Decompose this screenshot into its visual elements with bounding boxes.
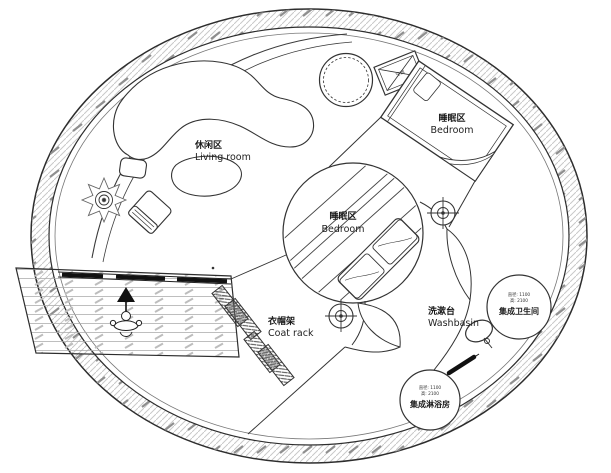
toilet-pod: 直径: 1100 高: 2100 集成卫生间: [487, 275, 551, 339]
toilet-pod-dim1: 直径: 1100: [508, 291, 531, 298]
toilet-pod-dim2: 高: 2100: [510, 297, 528, 304]
potted-plant-icon: [82, 178, 126, 222]
washbasin-label-zh: 洗漱台: [428, 305, 455, 317]
floor-plan-drawing: 空调 睡眠区 Bedroom: [0, 0, 611, 473]
shower-pod: 直径: 1100 高: 2100 集成淋浴房: [400, 370, 460, 430]
shower-pod-name: 集成淋浴房: [409, 399, 450, 409]
living-room-label-zh: 休闲区: [194, 139, 222, 151]
shower-pod-dim1: 直径: 1100: [419, 384, 442, 391]
bedroom-top-label-en: Bedroom: [431, 125, 474, 136]
entry-deck: [16, 268, 239, 357]
living-room-label-en: Living room: [195, 152, 251, 163]
floor-plan-canvas: 空调 睡眠区 Bedroom: [0, 0, 611, 473]
side-table: [119, 157, 147, 178]
coat-rack-label-en: Coat rack: [268, 328, 314, 339]
stray-dot: [212, 267, 215, 270]
bedroom-center-label-zh: 睡眠区: [329, 210, 356, 222]
bedroom-top-label-zh: 睡眠区: [438, 112, 465, 124]
washbasin-label-en: Washbasin: [428, 318, 479, 329]
toilet-pod-name: 集成卫生间: [498, 306, 539, 316]
coat-rack-label-zh: 衣帽架: [268, 315, 295, 327]
round-table: [320, 54, 373, 107]
bedroom-center-label-en: Bedroom: [322, 224, 365, 235]
shower-pod-dim2: 高: 2100: [421, 390, 439, 397]
